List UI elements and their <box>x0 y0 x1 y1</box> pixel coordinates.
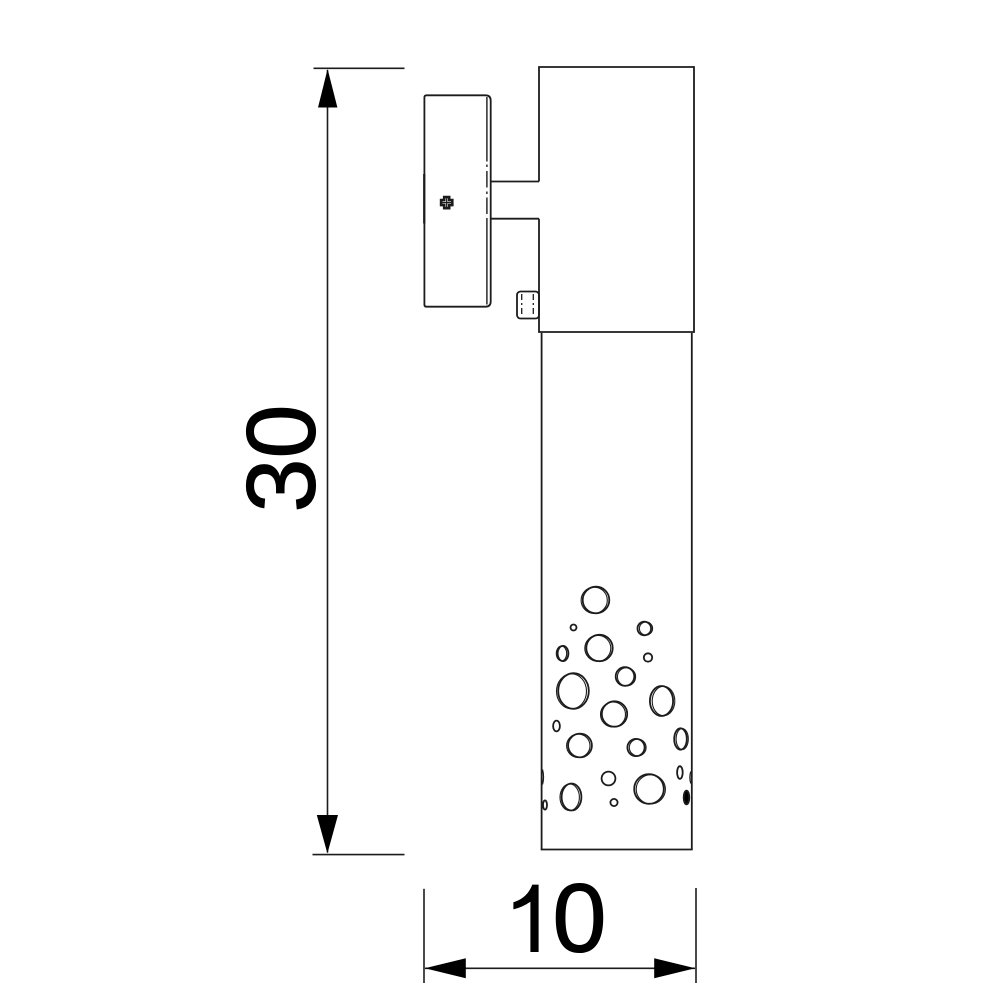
svg-text:0: 0 <box>553 864 607 973</box>
svg-text:30: 30 <box>227 405 336 513</box>
